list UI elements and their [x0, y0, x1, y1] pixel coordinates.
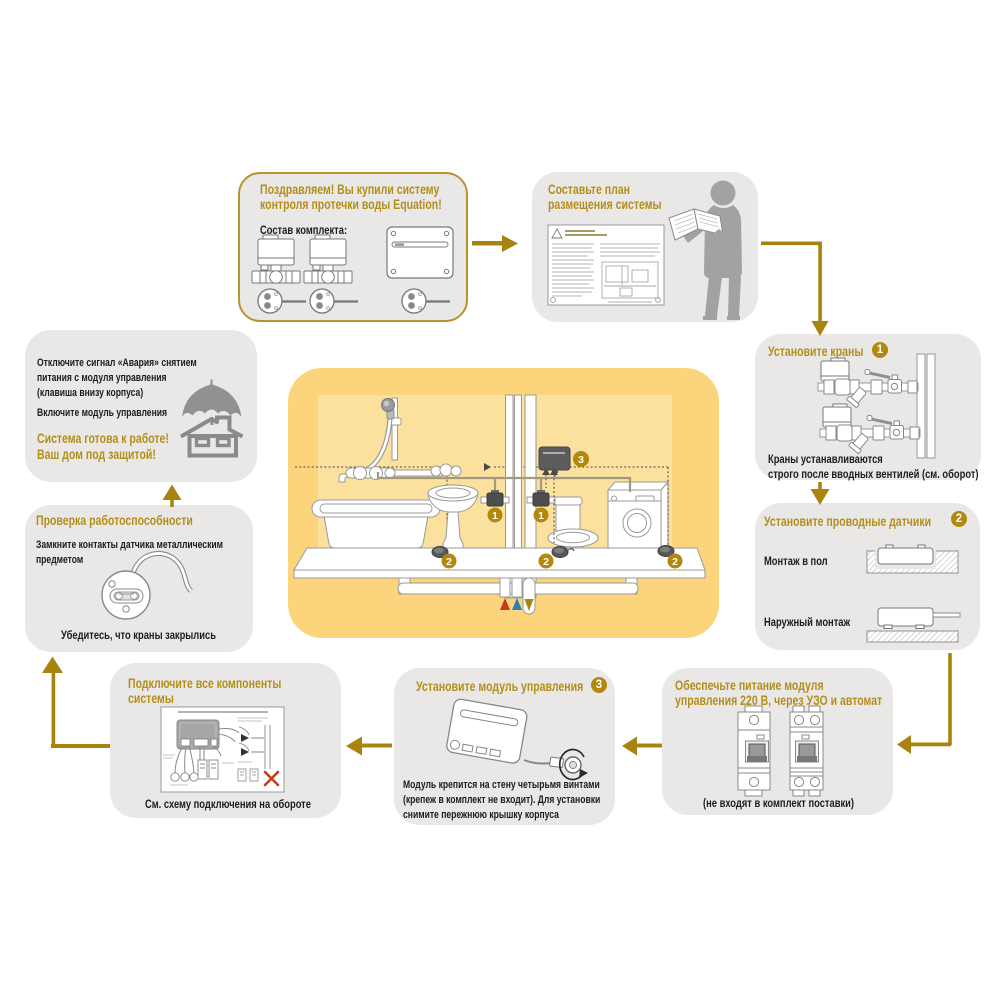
svg-text:2: 2 — [672, 556, 678, 568]
svg-text:2: 2 — [446, 556, 452, 568]
svg-text:1: 1 — [492, 510, 498, 522]
svg-text:1: 1 — [538, 510, 544, 522]
svg-text:3: 3 — [578, 454, 584, 466]
svg-text:2: 2 — [543, 556, 549, 568]
